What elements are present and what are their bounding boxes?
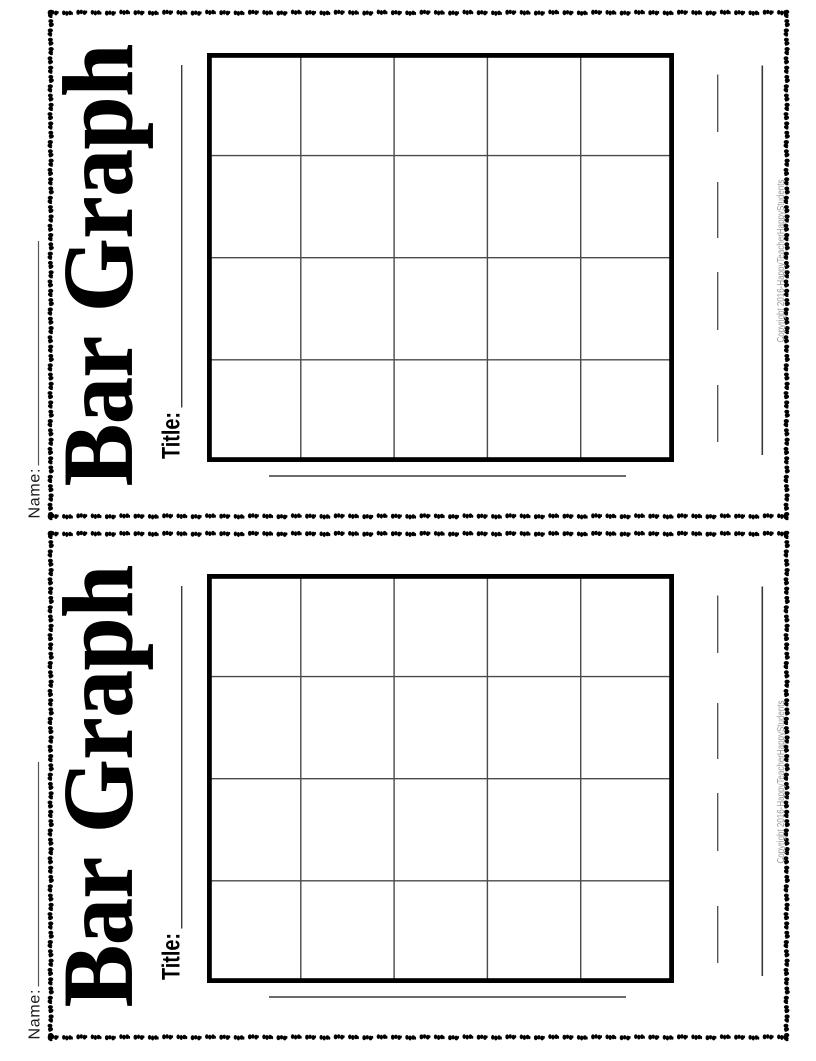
svg-text:Title:: Title: <box>159 412 186 459</box>
svg-text:Name:: Name: <box>27 990 44 1040</box>
svg-text:Copyright 2016-HappyTeacherHap: Copyright 2016-HappyTeacherHappyStudents <box>776 701 787 864</box>
svg-text:Graph: Graph <box>43 44 154 312</box>
svg-text:Graph: Graph <box>43 565 154 833</box>
svg-text:Name:: Name: <box>27 469 44 519</box>
svg-text:Bar: Bar <box>43 857 154 1007</box>
svg-text:Copyright 2016-HappyTeacherHap: Copyright 2016-HappyTeacherHappyStudents <box>776 180 787 343</box>
svg-text:Bar: Bar <box>43 336 154 486</box>
svg-text:Title:: Title: <box>159 933 186 980</box>
